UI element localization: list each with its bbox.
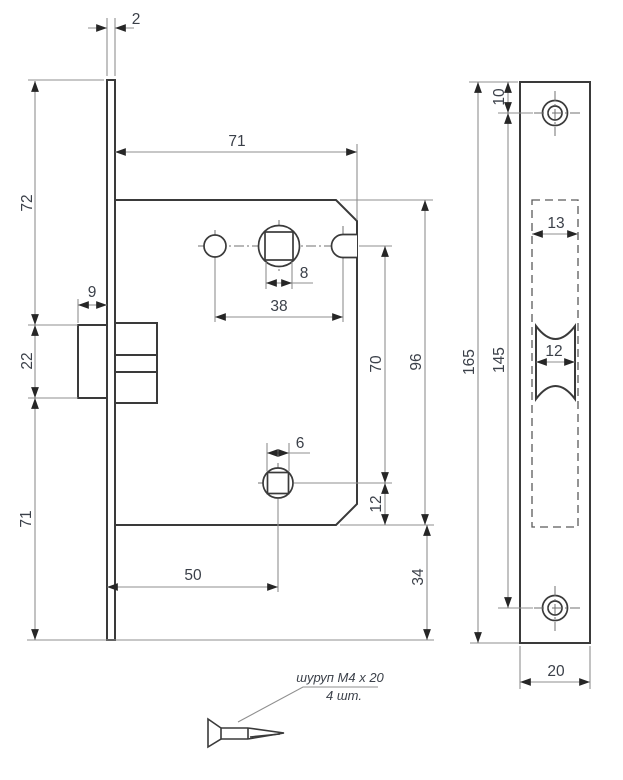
dim-backset: 50 xyxy=(184,567,202,584)
spindle-square-hole xyxy=(265,232,293,260)
drawing-svg: 2 71 72 9 22 71 8 38 70 96 6 12 50 34 xyxy=(0,0,623,780)
dim-latch-to-bottom: 71 xyxy=(18,510,35,527)
dim-top-to-screw: 10 xyxy=(491,88,508,106)
screw-note-line1: шуруп М4 х 20 xyxy=(296,670,384,685)
dim-body-height: 96 xyxy=(408,353,425,370)
screw-drawing xyxy=(208,719,284,747)
edge-notch-hole xyxy=(332,235,358,258)
privacy-square-hole xyxy=(268,473,289,494)
dim-top-to-latch: 72 xyxy=(19,194,36,211)
dim-spindle-to-privacy: 70 xyxy=(368,355,385,373)
screw-note-line2: 4 шт. xyxy=(326,688,362,703)
dim-slot-width: 13 xyxy=(547,215,564,232)
dim-faceplate-thickness: 2 xyxy=(132,11,141,28)
faceplate-edge xyxy=(107,80,115,640)
dim-body-width: 71 xyxy=(228,133,245,150)
side-view: 2 71 72 9 22 71 8 38 70 96 6 12 50 34 xyxy=(18,11,434,640)
lock-technical-drawing: 2 71 72 9 22 71 8 38 70 96 6 12 50 34 xyxy=(0,0,623,780)
latch-block xyxy=(115,323,157,403)
dim-privacy-to-bottom: 12 xyxy=(368,495,385,512)
dim-plate-width: 20 xyxy=(547,663,565,680)
dim-privacy-square: 6 xyxy=(296,435,305,452)
dim-plate-height: 165 xyxy=(461,349,478,375)
dim-latch-protrusion: 9 xyxy=(88,284,97,301)
dim-follower-spacing: 38 xyxy=(270,298,287,315)
dim-latch-height: 22 xyxy=(19,352,36,369)
dim-latch-width: 12 xyxy=(545,343,562,360)
dim-below-body: 34 xyxy=(410,568,427,586)
dim-spindle-square: 8 xyxy=(300,265,309,282)
front-view: 10 165 145 13 12 20 xyxy=(461,82,590,689)
latch-bolt-head xyxy=(78,325,107,398)
dim-screw-spacing: 145 xyxy=(491,347,508,373)
follower-pin-hole xyxy=(204,235,226,257)
screw-note: шуруп М4 х 20 4 шт. xyxy=(208,670,385,747)
